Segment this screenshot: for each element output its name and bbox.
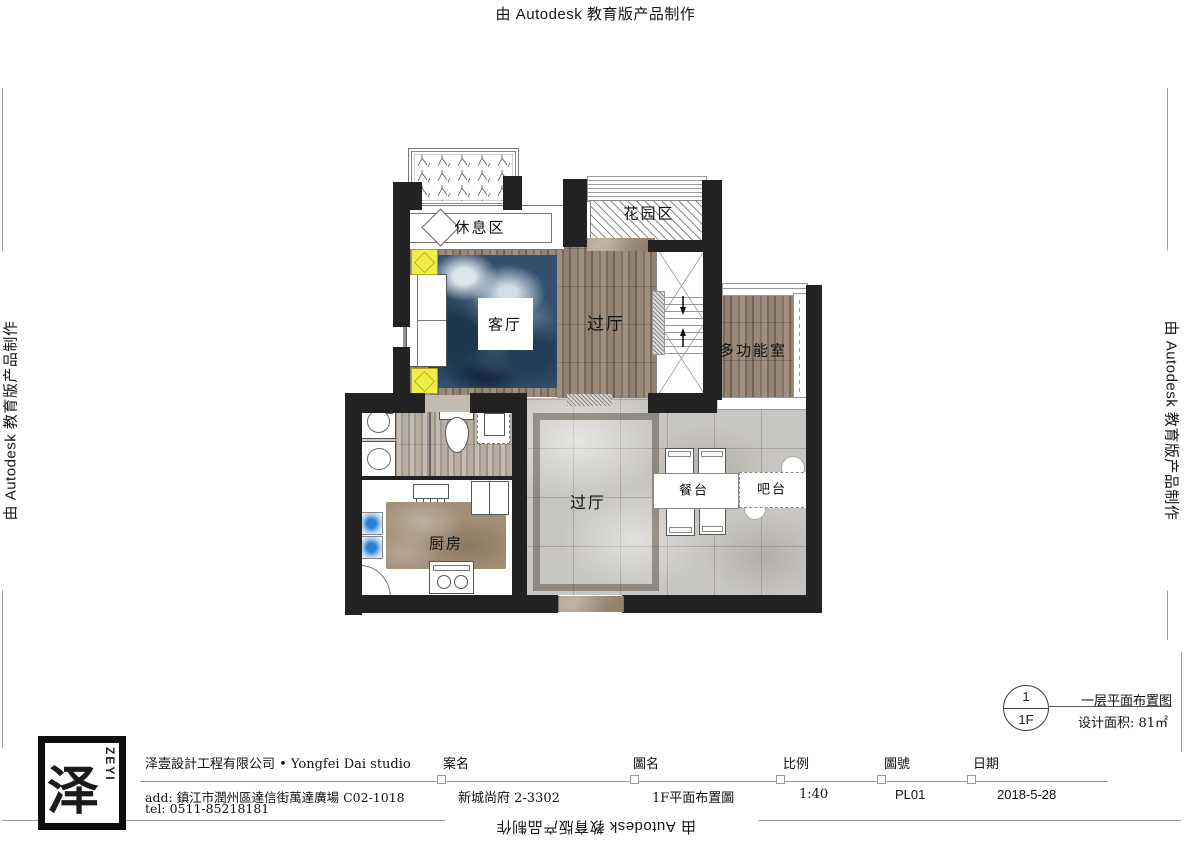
watermark-bottom: 由 Autodesk 教育版产品制作 bbox=[496, 817, 696, 838]
company-logo: 泽 ZEYI bbox=[38, 736, 126, 830]
field-label-number: 圖號 bbox=[884, 753, 910, 772]
label-dining-table: 餐台 bbox=[679, 480, 709, 499]
room-label-lower-hall: 过厅 bbox=[570, 489, 606, 513]
wall-segment bbox=[393, 347, 410, 397]
field-tick bbox=[967, 775, 976, 784]
field-value-project: 新城尚府 2-3302 bbox=[458, 787, 560, 806]
field-tick bbox=[630, 775, 639, 784]
room-label-garden: 花园区 bbox=[623, 203, 674, 224]
wall-segment bbox=[622, 595, 822, 613]
floor-detail-marker: 1 1F bbox=[1003, 685, 1049, 731]
bay-window-plant-pattern bbox=[414, 154, 513, 201]
wall-segment bbox=[393, 205, 410, 327]
field-tick bbox=[877, 775, 886, 784]
detail-number: 1 bbox=[1004, 686, 1048, 709]
detail-drawing-title: 一层平面布置图 bbox=[1081, 690, 1172, 709]
room-label-kitchen: 厨房 bbox=[429, 533, 463, 554]
field-label-drawing: 圖名 bbox=[633, 753, 659, 772]
field-tick bbox=[437, 775, 446, 784]
field-label-scale: 比例 bbox=[783, 753, 809, 772]
field-label-date: 日期 bbox=[973, 753, 999, 772]
ceiling-light-icon bbox=[411, 368, 438, 394]
sink-faucet-icon bbox=[360, 536, 383, 559]
label-bar-counter: 吧台 bbox=[757, 479, 787, 498]
dining-chair bbox=[699, 508, 726, 535]
watermark-top: 由 Autodesk 教育版产品制作 bbox=[496, 3, 696, 24]
drawing-sheet: { "watermark": { "text": "由 Autodesk 教育版… bbox=[0, 0, 1191, 842]
fridge bbox=[471, 481, 509, 515]
garden-pergola-hatch bbox=[587, 176, 707, 202]
sofa bbox=[406, 274, 447, 367]
company-name: 泽壹設計工程有限公司 • Yongfei Dai studio bbox=[145, 753, 411, 772]
field-value-number: PL01 bbox=[895, 787, 925, 802]
room-label-multi-room: 多功能室 bbox=[719, 340, 787, 361]
wall-segment bbox=[362, 476, 512, 480]
detail-design-area: 设计面积: 81㎡ bbox=[1078, 712, 1168, 731]
detail-floor: 1F bbox=[1004, 709, 1048, 731]
range-hood bbox=[413, 484, 449, 499]
wall-segment bbox=[345, 595, 558, 613]
wall-segment bbox=[806, 285, 822, 595]
watermark-left: 由 Autodesk 教育版产品制作 bbox=[0, 251, 21, 591]
wall-segment bbox=[563, 179, 587, 247]
watermark-right: 由 Autodesk 教育版产品制作 bbox=[1162, 251, 1183, 591]
field-value-date: 2018-5-28 bbox=[997, 787, 1056, 802]
wall-segment bbox=[703, 243, 722, 400]
dining-chair bbox=[665, 448, 694, 476]
room-label-rest-area: 休息区 bbox=[454, 217, 505, 238]
bathroom-sink bbox=[361, 441, 396, 477]
wall-segment bbox=[470, 393, 527, 413]
logo-brand: ZEYI bbox=[103, 747, 117, 782]
bathroom-door-opening bbox=[425, 395, 470, 412]
field-value-scale: 1:40 bbox=[799, 787, 828, 802]
hall-threshold bbox=[567, 394, 612, 406]
room-label-living-room: 客厅 bbox=[488, 314, 522, 335]
wall-segment bbox=[648, 393, 717, 413]
dining-chair bbox=[666, 508, 695, 536]
field-label-project: 案名 bbox=[443, 753, 469, 772]
field-value-drawing: 1F平面布置圖 bbox=[652, 787, 734, 806]
ceiling-light-icon bbox=[411, 249, 438, 275]
room-label-upper-hall: 过厅 bbox=[587, 310, 625, 335]
logo-glyph: 泽 bbox=[47, 749, 97, 811]
stair-newel-hatch bbox=[652, 291, 665, 355]
company-phone: tel: 0511-85218181 bbox=[145, 801, 269, 816]
field-tick bbox=[776, 775, 785, 784]
dining-chair bbox=[698, 448, 726, 476]
entry-threshold bbox=[558, 596, 624, 612]
stove bbox=[429, 561, 474, 594]
wall-segment bbox=[503, 176, 522, 210]
wall-segment bbox=[512, 413, 527, 600]
wall-segment bbox=[345, 393, 362, 615]
garden-threshold bbox=[587, 238, 655, 251]
sink-faucet-icon bbox=[360, 512, 383, 535]
wall-segment bbox=[362, 393, 425, 413]
multi-room-sill bbox=[718, 397, 806, 410]
bathroom-partition bbox=[429, 403, 431, 478]
